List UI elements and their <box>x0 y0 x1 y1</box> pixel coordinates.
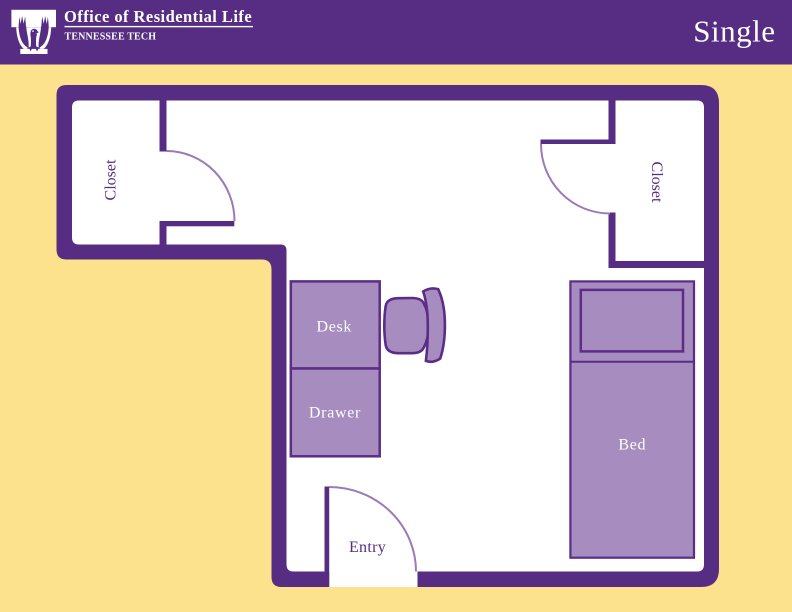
svg-text:Drawer: Drawer <box>309 405 361 422</box>
svg-text:Desk: Desk <box>316 319 352 336</box>
svg-text:Office of Residential Life: Office of Residential Life <box>64 7 252 26</box>
svg-text:TENNESSEE TECH: TENNESSEE TECH <box>65 32 157 43</box>
svg-text:Bed: Bed <box>618 437 646 454</box>
svg-text:Single: Single <box>693 14 775 49</box>
svg-text:Closet: Closet <box>103 159 120 200</box>
svg-text:Closet: Closet <box>648 162 665 203</box>
svg-text:Entry: Entry <box>349 539 386 556</box>
